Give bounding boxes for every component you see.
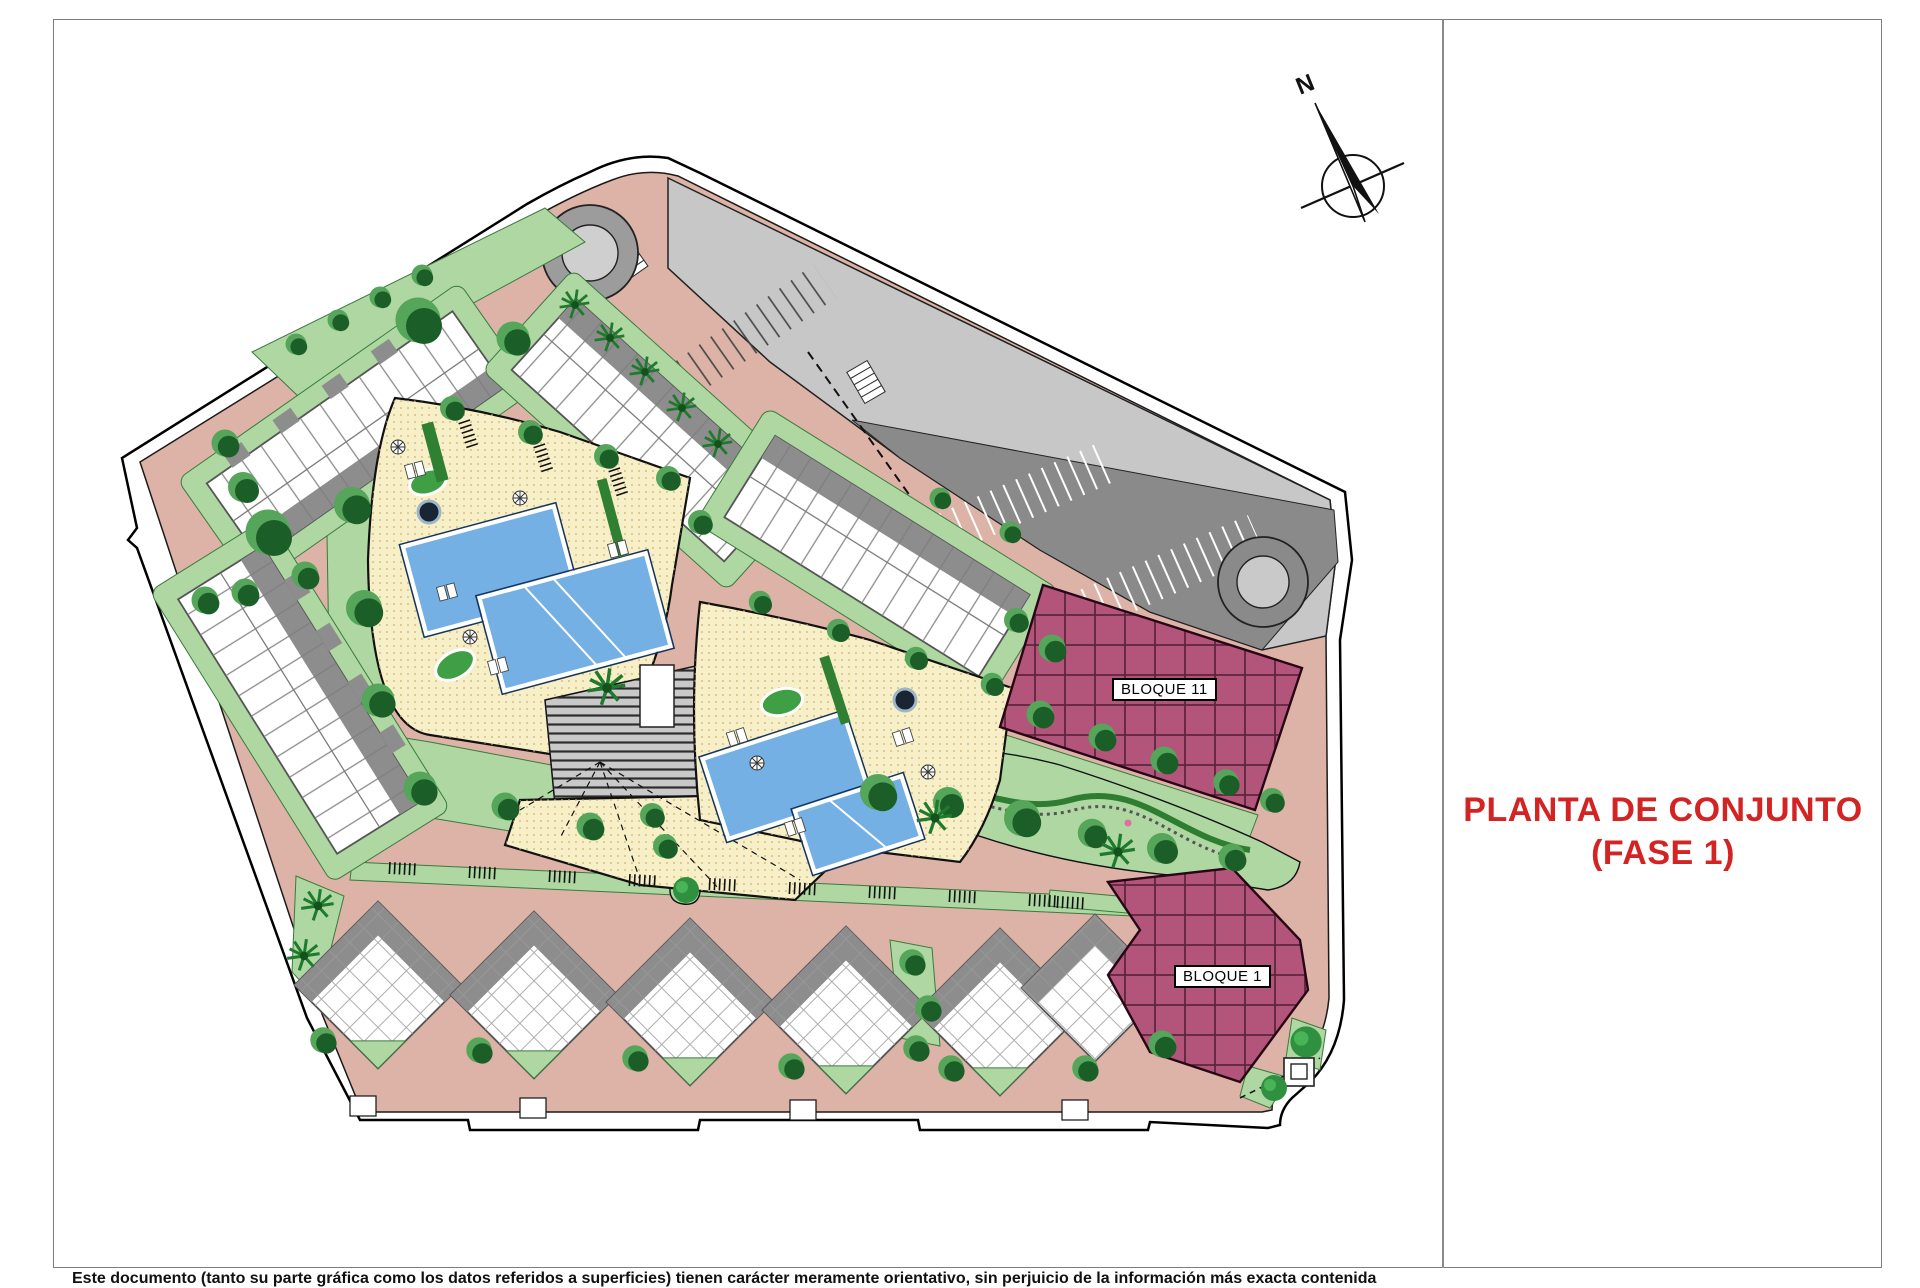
title-panel-divider bbox=[1442, 19, 1444, 1268]
page-frame bbox=[53, 19, 1882, 1268]
bloque-1-label: BLOQUE 1 bbox=[1174, 965, 1271, 988]
bloque-11-label: BLOQUE 11 bbox=[1112, 678, 1217, 701]
drawing-title-line1: PLANTA DE CONJUNTO bbox=[1444, 789, 1882, 832]
disclaimer-text: Este documento (tanto su parte gráfica c… bbox=[72, 1270, 1376, 1288]
page: { "page": { "title_line1": "PLANTA DE CO… bbox=[0, 0, 1920, 1280]
drawing-title-line2: (FASE 1) bbox=[1444, 832, 1882, 875]
drawing-title: PLANTA DE CONJUNTO (FASE 1) bbox=[1444, 789, 1882, 875]
